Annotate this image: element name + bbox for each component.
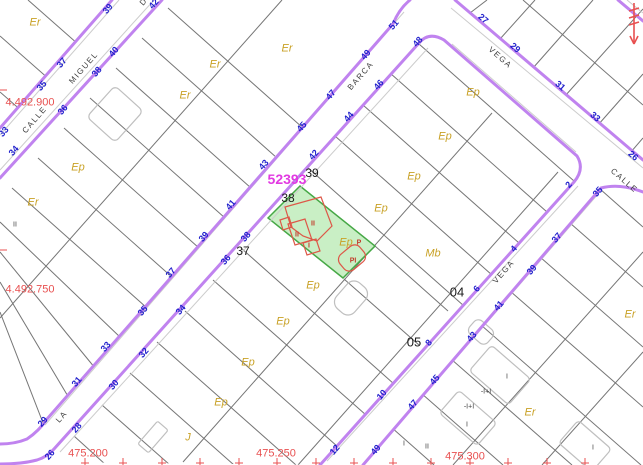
house-number-label: 45 (295, 120, 308, 133)
house-number-label: 30 (107, 378, 120, 391)
house-number-label: 29 (36, 415, 49, 428)
map-label-layer: CALLEMIGUELDBARCALAVEGAVEGACALLE33353739… (0, 0, 643, 465)
house-number-label: 39 (197, 230, 210, 243)
house-number-label: 37 (164, 266, 177, 279)
house-number-label: 12 (328, 443, 341, 456)
house-number-label: 39 (525, 263, 538, 276)
house-number-label: 49 (359, 48, 372, 61)
building-height-label: II (311, 221, 315, 228)
building-height-label: II (13, 222, 17, 229)
house-number-label: 46 (372, 78, 385, 91)
land-use-label: Er (625, 310, 636, 321)
house-number-label: 43 (257, 158, 270, 171)
house-number-label: 51 (387, 18, 400, 31)
building-height-label: I (592, 445, 594, 452)
land-use-label: J (185, 433, 191, 444)
utm-coordinate-label: 4.492.900 (6, 98, 55, 109)
house-number-label: 42 (147, 0, 160, 11)
land-use-label: Er (30, 18, 41, 29)
house-number-label: 36 (219, 253, 232, 266)
house-number-label: 33 (0, 125, 11, 138)
land-use-label: Er (210, 60, 221, 71)
house-number-label: 28 (70, 421, 83, 434)
land-use-label: Ep (407, 172, 420, 183)
land-use-label: Ep (214, 398, 227, 409)
house-number-label: 4 (509, 244, 519, 254)
cadastral-block-number: 52393 (268, 172, 307, 186)
house-number-label: 36 (56, 103, 69, 116)
land-use-label: Mb (425, 249, 440, 260)
building-height-label: PI (350, 258, 357, 265)
house-number-label: 43 (465, 330, 478, 343)
house-number-label: 37 (55, 56, 68, 69)
house-number-label: 35 (136, 304, 149, 317)
house-number-label: 26 (43, 448, 56, 461)
house-number-label: 39 (101, 2, 114, 15)
house-number-label: 49 (369, 443, 382, 456)
building-height-label: -I+I (481, 389, 491, 396)
house-number-label: 34 (7, 144, 20, 157)
street-name-label: LA (55, 410, 69, 425)
building-height-label: I (403, 441, 405, 448)
parcel-number-label: 39 (305, 167, 318, 179)
building-height-label: II (295, 232, 299, 239)
land-use-label: Ep (71, 163, 84, 174)
house-number-label: 29 (508, 41, 521, 54)
utm-coordinate-label: 475.300 (445, 452, 485, 463)
house-number-label: 47 (324, 88, 337, 101)
house-number-label: 45 (428, 373, 441, 386)
land-use-label: Ep (306, 281, 319, 292)
house-number-label: 37 (550, 231, 563, 244)
building-height-label: II (425, 444, 429, 451)
house-number-label: 26 (626, 149, 639, 162)
house-number-label: 6 (472, 284, 482, 294)
house-number-label: 41 (492, 299, 505, 312)
land-use-label: Ep (241, 358, 254, 369)
house-number-label: 34 (174, 303, 187, 316)
house-number-label: 38 (90, 65, 103, 78)
land-use-label: Ep (339, 238, 352, 249)
house-number-label: 47 (406, 398, 419, 411)
house-number-label: 31 (553, 79, 566, 92)
house-number-label: 42 (307, 148, 320, 161)
house-number-label: 8 (424, 338, 434, 348)
parcel-number-label: 04 (450, 286, 464, 299)
house-number-label: 40 (107, 45, 120, 58)
house-number-label: 35 (35, 79, 48, 92)
street-name-label: CALLE (21, 105, 49, 135)
parcel-number-label: 37 (236, 245, 249, 257)
house-number-label: 44 (342, 110, 355, 123)
parcel-number-label: 38 (281, 192, 294, 204)
land-use-label: Ep (438, 132, 451, 143)
house-number-label: 32 (137, 346, 150, 359)
utm-coordinate-label: 4.492.750 (6, 285, 55, 296)
house-number-label: 10 (375, 388, 388, 401)
land-use-label: Ep (466, 88, 479, 99)
building-height-label: -I+I (464, 404, 474, 411)
land-use-label: Er (28, 198, 39, 209)
land-use-label: Ep (276, 317, 289, 328)
land-use-label: Er (282, 44, 293, 55)
house-number-label: 35 (591, 185, 604, 198)
land-use-label: Er (180, 91, 191, 102)
building-height-label: I (506, 374, 508, 381)
street-name-label: BARCA (346, 60, 375, 92)
building-height-label: P (357, 240, 362, 247)
house-number-label: 33 (588, 110, 601, 123)
house-number-label: 2 (564, 180, 574, 190)
building-height-label: I (308, 243, 310, 250)
street-name-label: CALLE (609, 167, 639, 195)
building-height-label: I (466, 422, 468, 429)
house-number-label: 41 (224, 198, 237, 211)
utm-coordinate-label: 475.200 (68, 449, 108, 460)
house-number-label: 31 (70, 375, 83, 388)
house-number-label: 27 (476, 12, 489, 25)
house-number-label: 48 (411, 35, 424, 48)
land-use-label: Ep (374, 204, 387, 215)
cadastral-map-canvas[interactable]: CALLEMIGUELDBARCALAVEGAVEGACALLE33353739… (0, 0, 643, 465)
land-use-label: Er (525, 408, 536, 419)
street-name-label: VEGA (492, 259, 517, 286)
utm-coordinate-label: 475.250 (256, 449, 296, 460)
house-number-label: 33 (99, 340, 112, 353)
house-number-label: 38 (239, 230, 252, 243)
parcel-number-label: 05 (407, 336, 421, 349)
